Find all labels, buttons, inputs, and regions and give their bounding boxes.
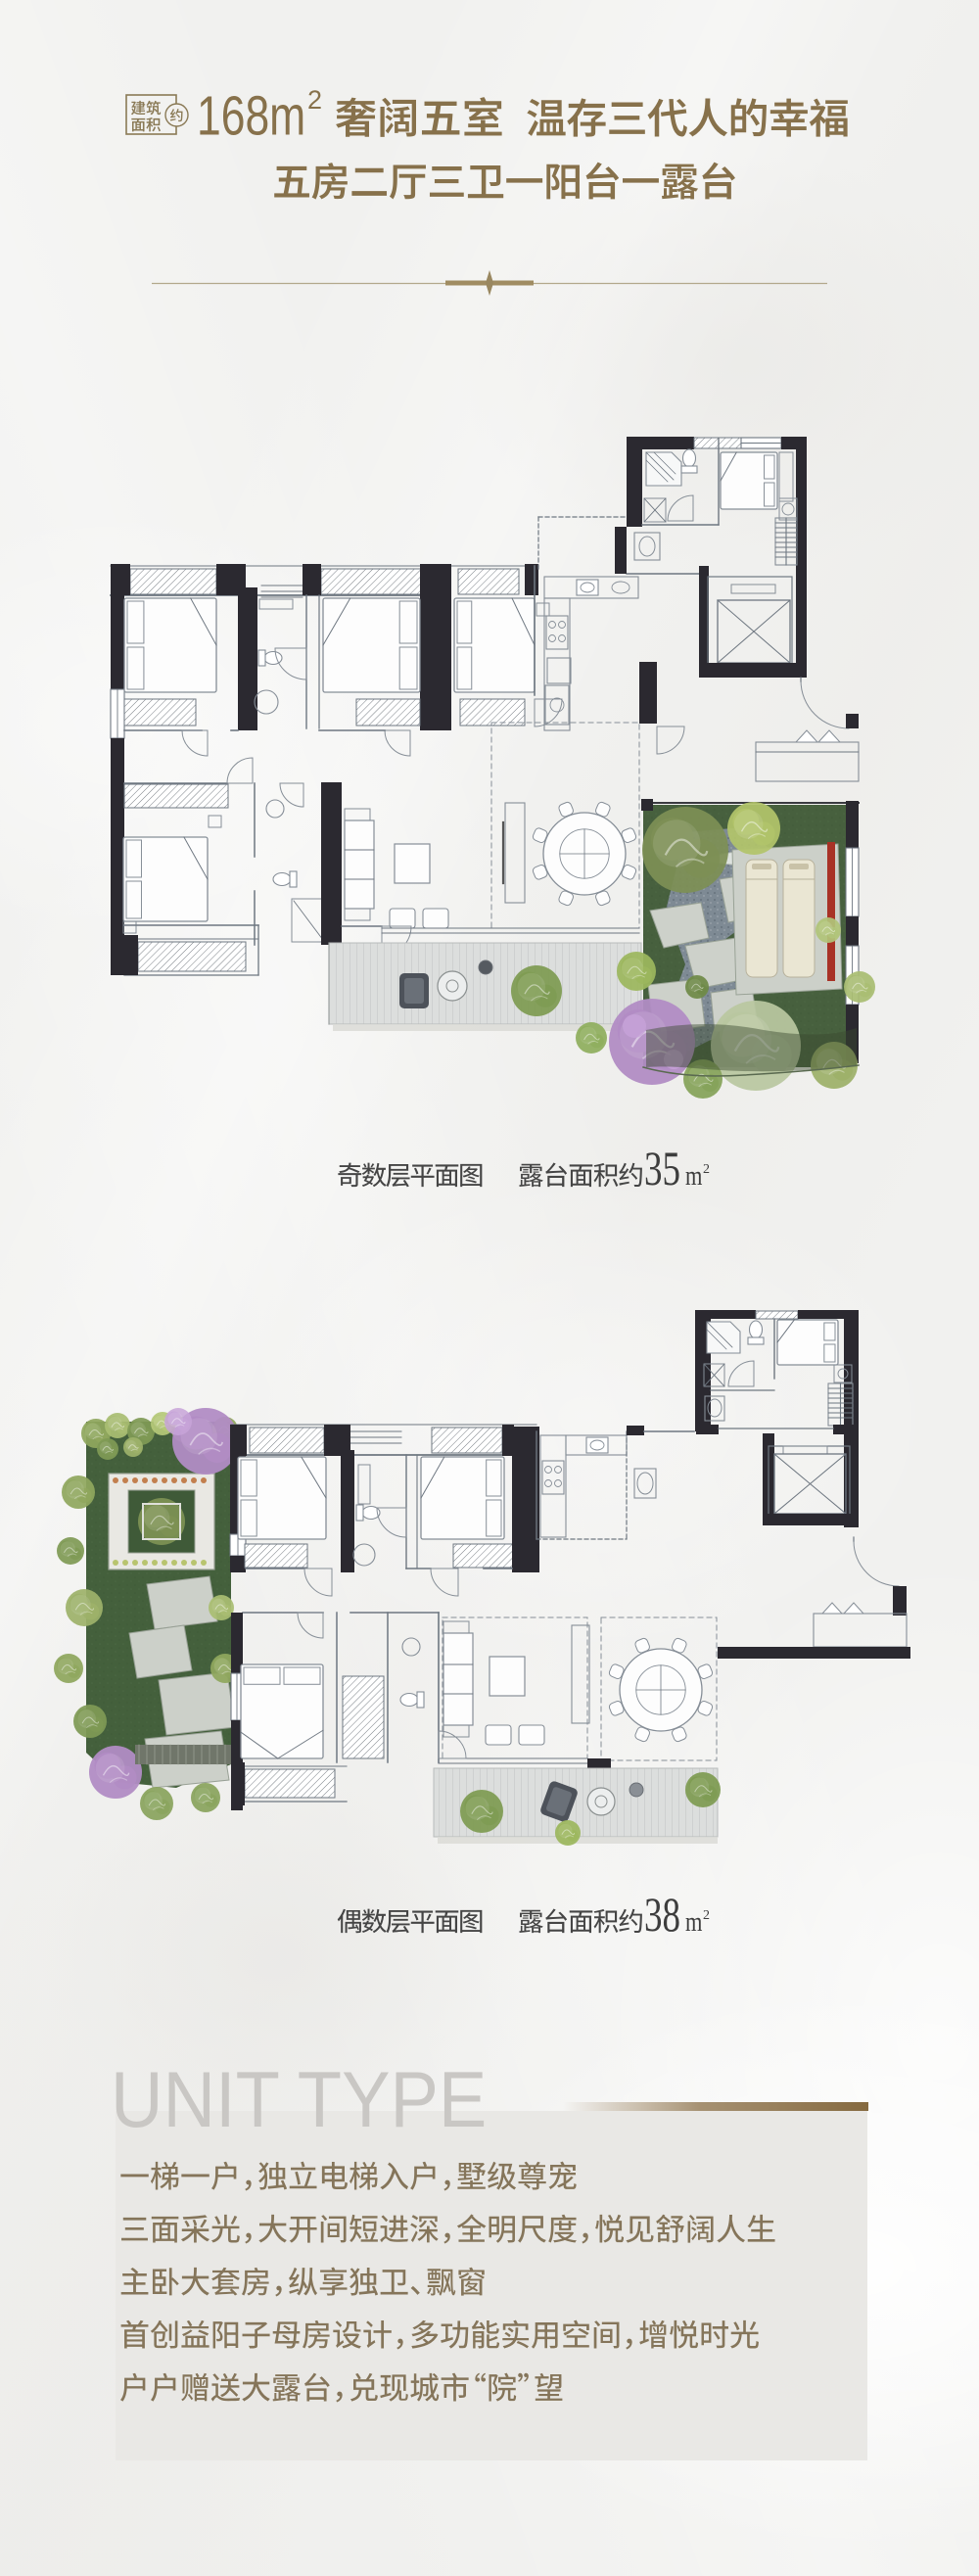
svg-text:2: 2 (307, 85, 322, 115)
svg-text:m: m (685, 1907, 703, 1938)
svg-text:2: 2 (703, 1162, 710, 1177)
svg-text:2: 2 (703, 1908, 710, 1923)
svg-text:UNIT TYPE: UNIT TYPE (111, 2056, 487, 2144)
svg-text:m: m (685, 1161, 703, 1192)
svg-text:35: 35 (644, 1142, 680, 1196)
svg-text:38: 38 (644, 1888, 680, 1943)
svg-text:168m: 168m (197, 84, 305, 147)
